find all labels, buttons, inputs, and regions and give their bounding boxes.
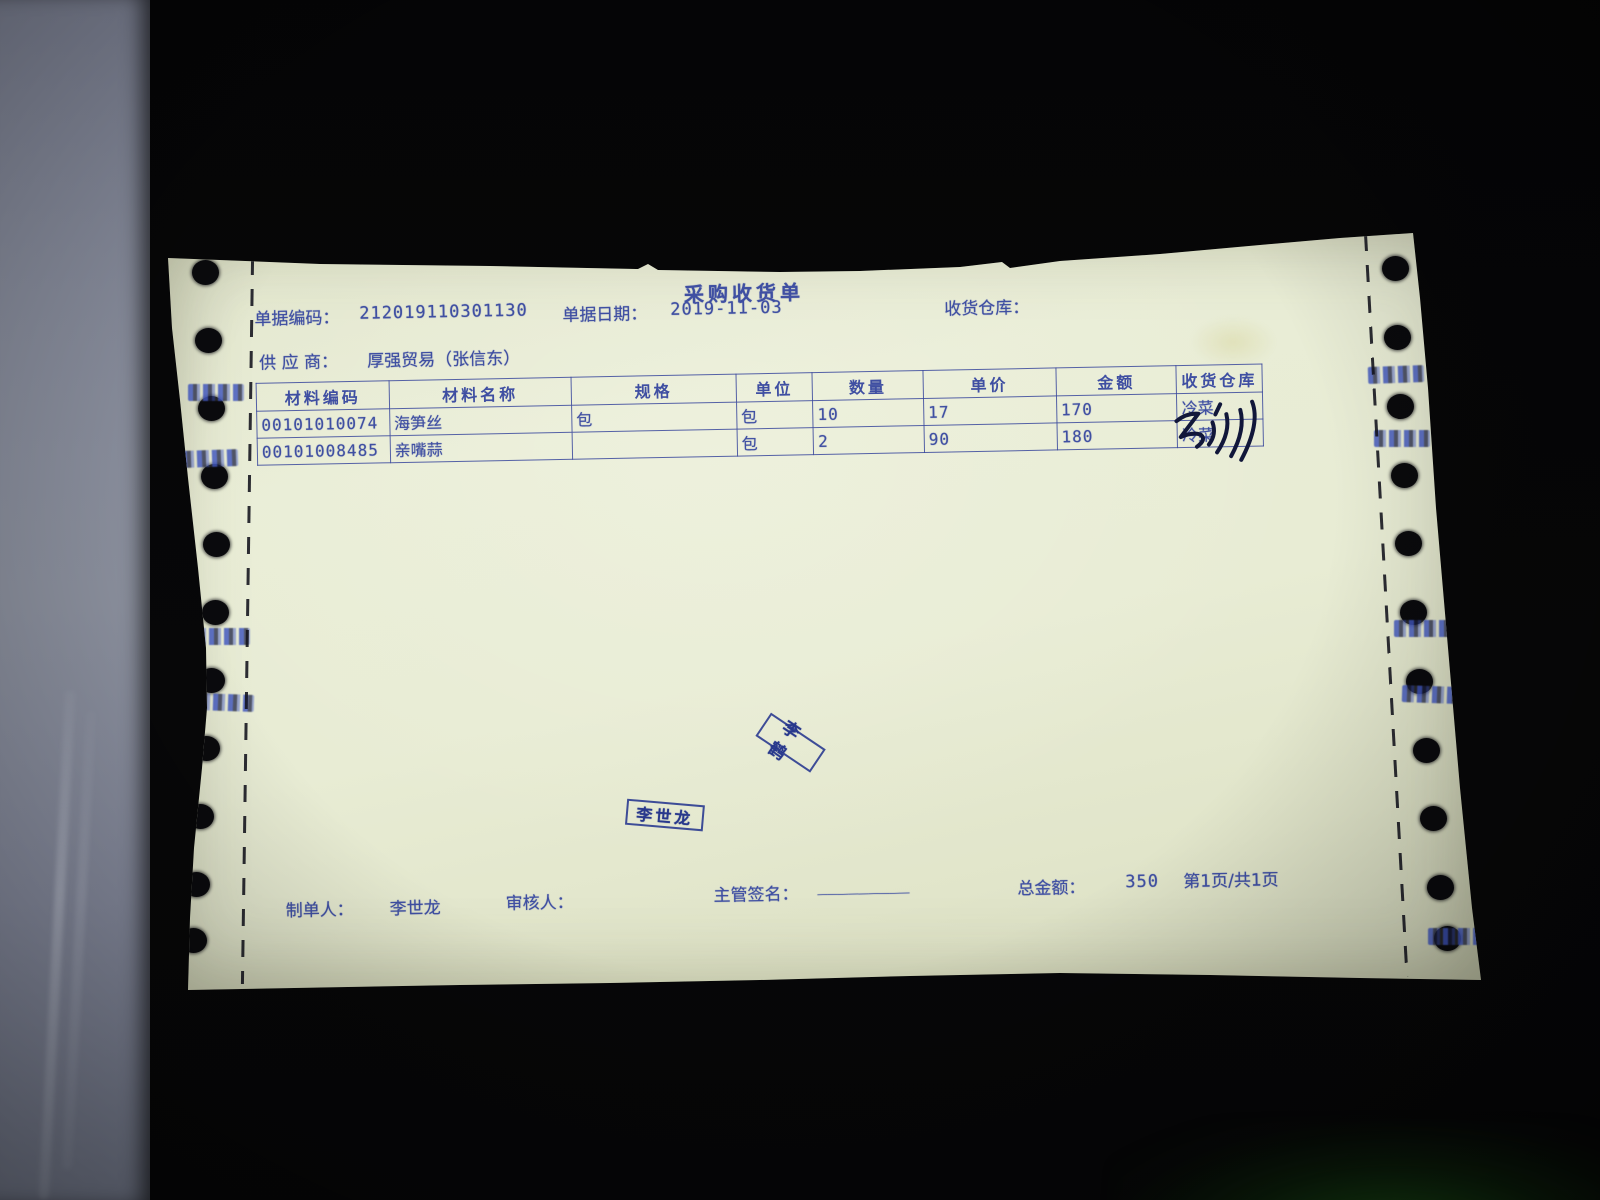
cell-amount: 180 [1057,421,1178,450]
signature-label: 主管签名： [713,879,798,906]
doc-date-label: 单据日期： [562,299,647,326]
col-header-unit: 单位 [736,373,813,402]
stamp-lihe-text: 李鹤 [764,713,830,780]
cell-quantity: 10 [813,398,924,427]
maker-value: 李世龙 [389,893,440,919]
background-wall-strip [0,0,150,1200]
cell-amount: 170 [1056,394,1177,423]
supplier-value: 厚强贸易（张信东） [367,344,520,372]
warehouse-label: 收货仓库： [944,293,1029,320]
stamp-lishilong-text: 李世龙 [636,801,695,830]
cell-unit-price: 17 [923,396,1056,426]
cell-unit-price: 90 [924,423,1057,453]
doc-no-label: 单据编码： [254,303,339,330]
signature-line: _________ [817,874,909,896]
col-header-material-name: 材料名称 [389,377,572,408]
handwritten-mark [1168,395,1269,463]
stamp-lihe: 李鹤 [755,713,825,773]
page-indicator: 第1页/共1页 [1183,865,1279,892]
doc-date-value: 2019-11-03 [670,298,783,320]
supplier-label: 供 应 商： [259,347,338,374]
cell-material-name: 亲嘴蒜 [390,432,573,462]
col-header-unit-price: 单价 [923,368,1056,399]
col-header-amount: 金额 [1056,366,1177,396]
maker-label: 制单人： [285,895,353,921]
cell-spec [572,429,737,459]
col-header-material-code: 材料编码 [256,381,389,412]
items-table: 材料编码 材料名称 规格 单位 数量 单价 金额 收货仓库 0010101007… [256,363,1264,465]
total-label: 总金额： [1017,873,1085,899]
cell-quantity: 2 [813,425,924,454]
cell-unit: 包 [737,428,814,456]
reviewer-label: 审核人： [505,888,573,914]
col-header-quantity: 数量 [812,371,923,401]
doc-no-value: 212019110301130 [359,301,528,324]
receipt-paper: 采购收货单 单据编码： 212019110301130 单据日期： 2019-1… [160,228,1482,990]
total-value: 350 [1125,872,1159,893]
cell-spec: 包 [571,402,736,432]
photo-scene: 采购收货单 单据编码： 212019110301130 单据日期： 2019-1… [0,0,1600,1200]
cell-material-code: 00101010074 [257,409,390,439]
cell-material-name: 海笋丝 [389,405,572,435]
cell-unit: 包 [736,401,813,429]
cell-material-code: 00101008485 [257,436,390,466]
col-header-warehouse: 收货仓库 [1176,364,1262,394]
background-reflection [1110,1120,1600,1200]
stamp-lishilong: 李世龙 [625,799,705,832]
printed-content: 采购收货单 单据编码： 212019110301130 单据日期： 2019-1… [153,215,1489,1002]
col-header-spec: 规格 [571,374,736,405]
